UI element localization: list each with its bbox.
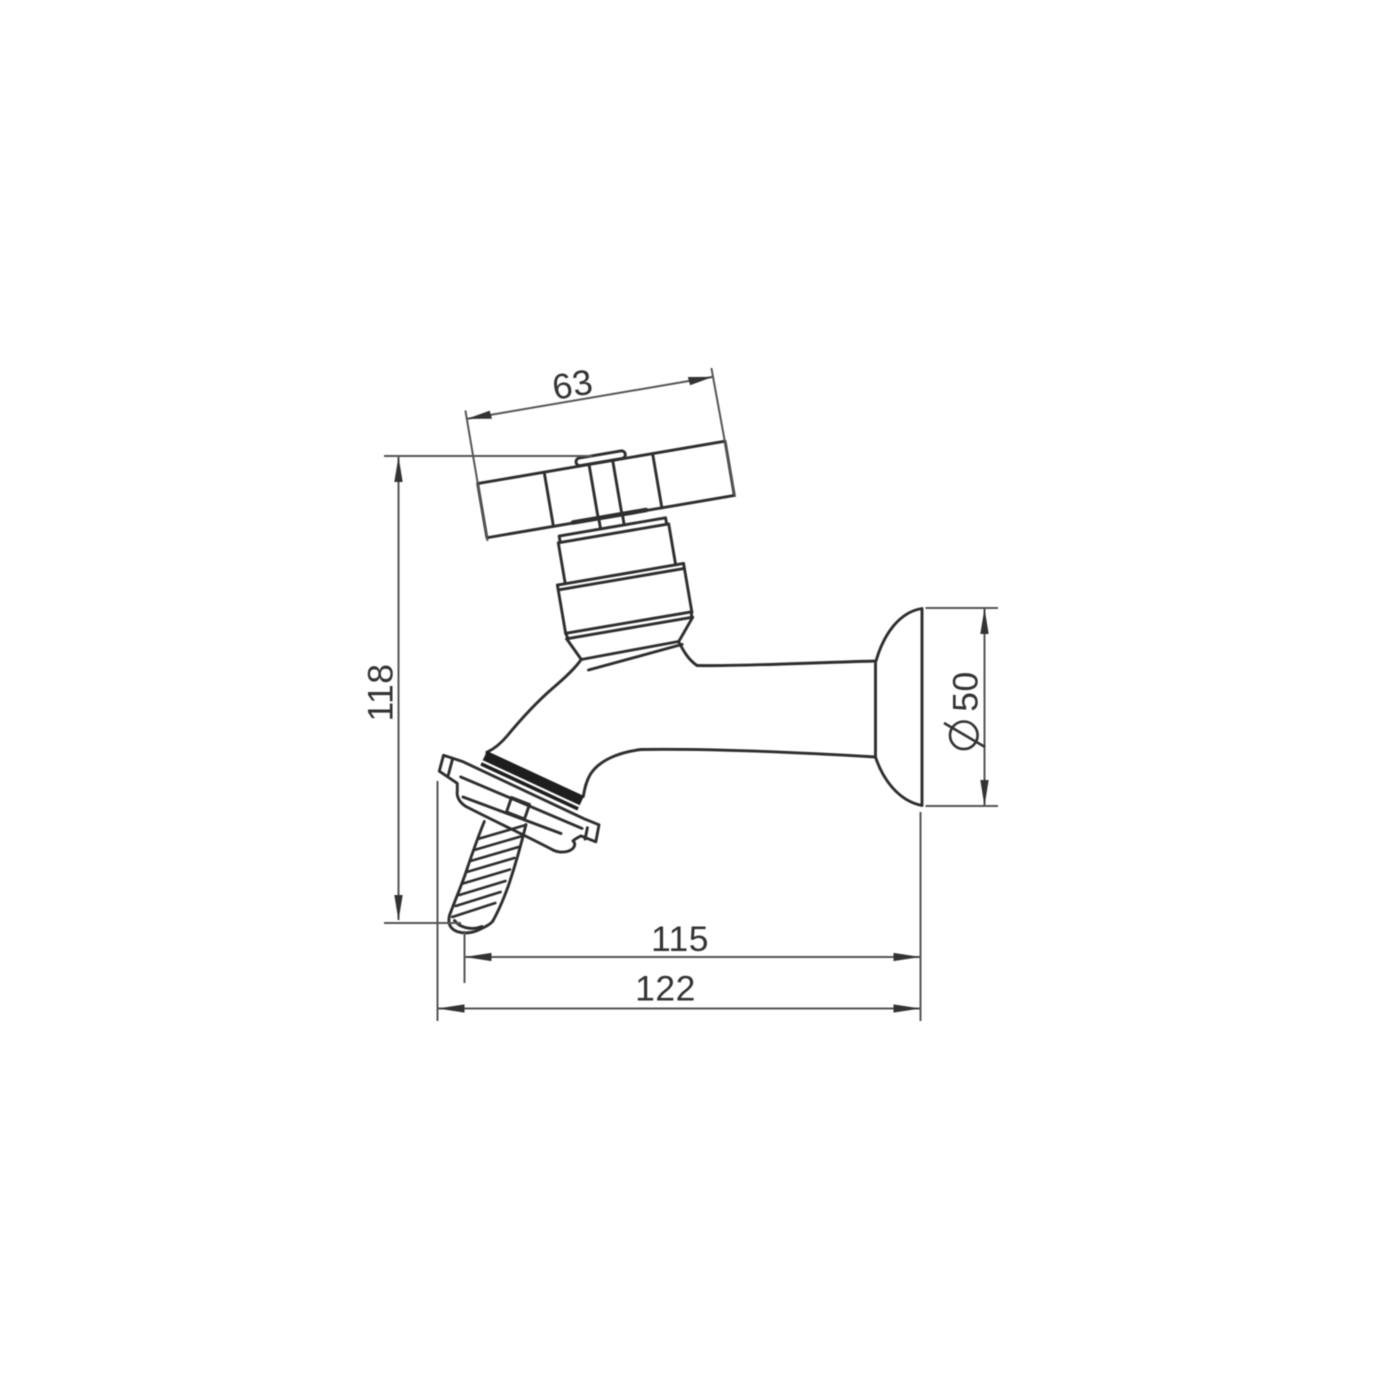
- svg-text:118: 118: [361, 663, 401, 721]
- svg-text:50: 50: [946, 671, 986, 712]
- svg-text:122: 122: [635, 969, 696, 1009]
- svg-text:63: 63: [549, 362, 596, 408]
- svg-text:115: 115: [651, 919, 709, 959]
